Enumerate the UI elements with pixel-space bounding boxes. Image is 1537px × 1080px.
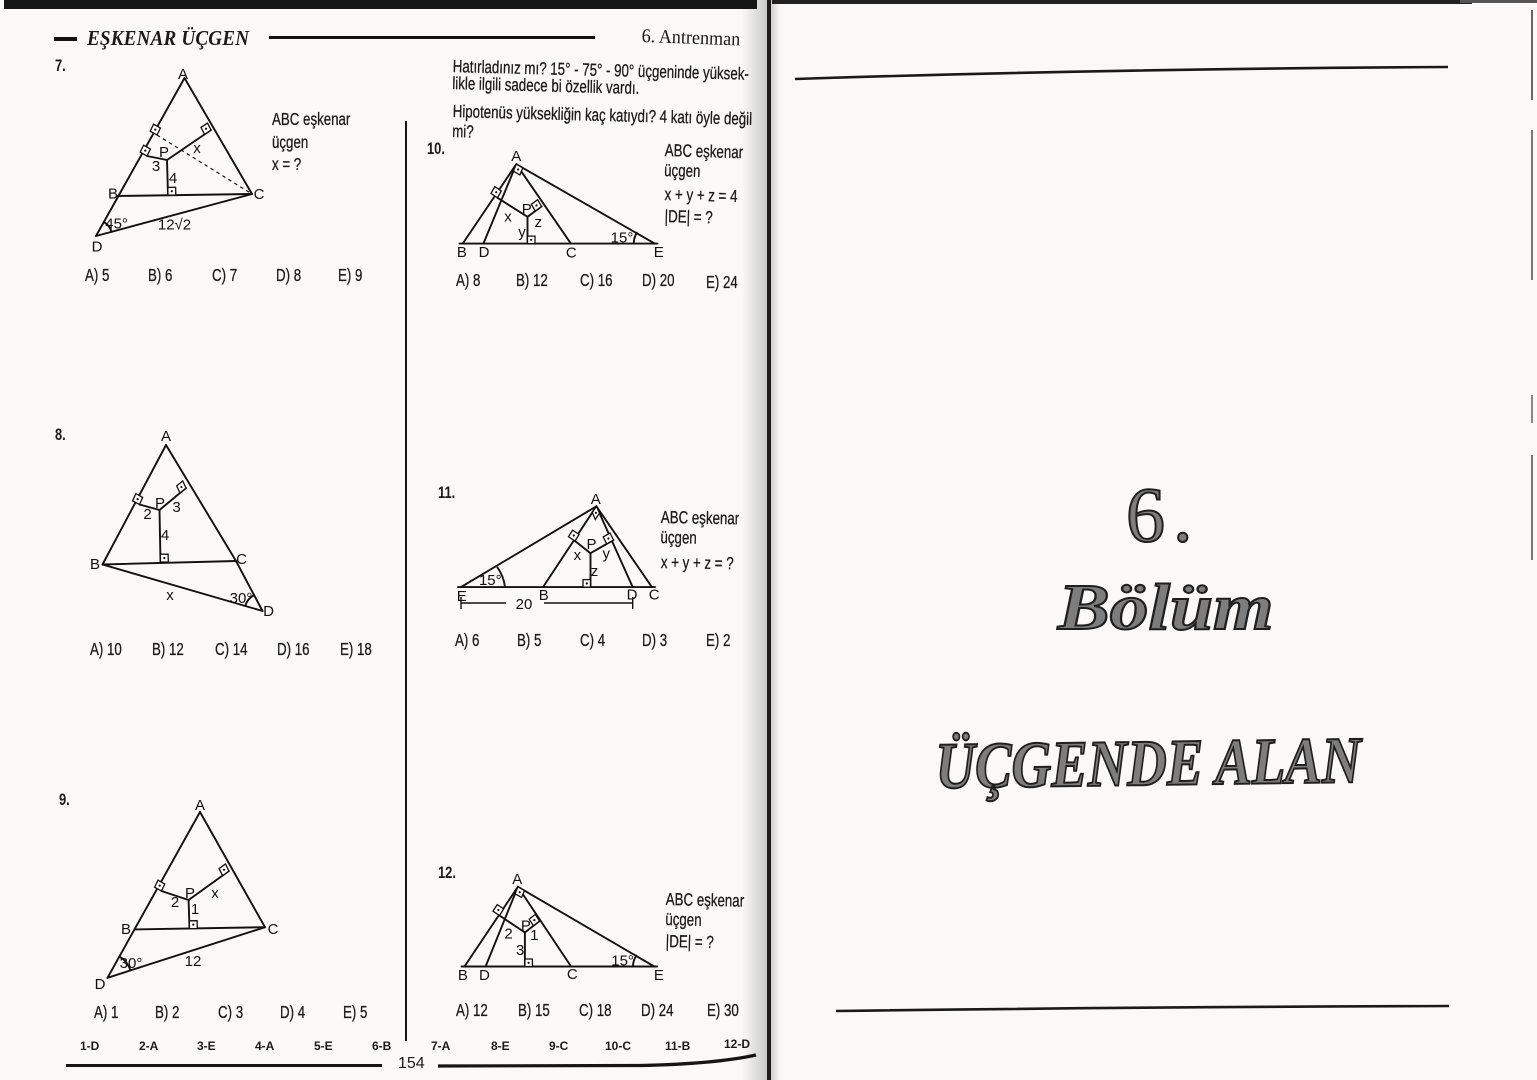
svg-text:A: A	[195, 797, 205, 814]
svg-text:12√2: 12√2	[158, 217, 191, 234]
svg-text:30°: 30°	[120, 955, 143, 972]
svg-text:20: 20	[516, 596, 533, 613]
svg-text:E: E	[654, 244, 664, 261]
svg-text:1: 1	[191, 901, 199, 918]
svg-text:45°: 45°	[105, 216, 128, 233]
svg-text:1: 1	[530, 927, 538, 944]
svg-text:C: C	[566, 245, 577, 262]
svg-text:2: 2	[143, 506, 151, 523]
svg-text:D: D	[479, 244, 490, 261]
svg-text:30°: 30°	[230, 590, 253, 607]
svg-text:x: x	[504, 209, 512, 226]
svg-text:P: P	[185, 885, 195, 902]
svg-text:15°: 15°	[611, 953, 634, 970]
svg-text:A: A	[511, 148, 521, 165]
svg-text:C: C	[268, 921, 279, 938]
svg-text:E: E	[457, 588, 467, 605]
svg-text:12: 12	[185, 953, 202, 970]
svg-text:3: 3	[172, 499, 180, 516]
svg-text:4: 4	[169, 170, 177, 187]
svg-text:C: C	[649, 587, 660, 604]
svg-text:A: A	[178, 66, 188, 83]
svg-text:x: x	[211, 885, 219, 902]
svg-text:15°: 15°	[611, 230, 634, 247]
svg-text:C: C	[567, 966, 578, 983]
svg-text:x: x	[574, 547, 582, 564]
svg-text:z: z	[591, 563, 599, 580]
svg-text:B: B	[458, 967, 468, 984]
svg-text:2: 2	[171, 894, 179, 911]
svg-text:A: A	[512, 871, 522, 888]
svg-text:y: y	[602, 546, 610, 563]
svg-text:D: D	[92, 239, 103, 256]
svg-text:4: 4	[161, 527, 169, 544]
svg-text:C: C	[236, 551, 247, 568]
svg-text:D: D	[263, 603, 274, 620]
svg-text:x: x	[193, 140, 201, 157]
svg-text:A: A	[591, 491, 601, 508]
svg-text:P: P	[586, 536, 596, 553]
svg-text:15°: 15°	[479, 572, 502, 589]
svg-text:y: y	[518, 224, 526, 241]
svg-text:z: z	[535, 214, 543, 231]
svg-text:3: 3	[152, 158, 160, 175]
svg-text:P: P	[155, 495, 165, 512]
svg-text:A: A	[161, 428, 171, 445]
svg-text:B: B	[457, 244, 467, 261]
svg-text:x: x	[166, 587, 174, 604]
svg-text:P: P	[159, 144, 169, 161]
svg-text:B: B	[90, 556, 100, 573]
svg-text:2: 2	[504, 926, 512, 943]
svg-text:D: D	[479, 967, 490, 984]
svg-text:D: D	[627, 587, 638, 604]
svg-text:B: B	[108, 186, 118, 203]
svg-text:B: B	[121, 921, 131, 938]
svg-text:D: D	[95, 976, 106, 993]
svg-text:P: P	[522, 201, 532, 218]
svg-text:B: B	[539, 587, 549, 604]
svg-text:E: E	[654, 967, 664, 984]
svg-text:C: C	[254, 186, 265, 203]
svg-text:3: 3	[516, 942, 524, 959]
